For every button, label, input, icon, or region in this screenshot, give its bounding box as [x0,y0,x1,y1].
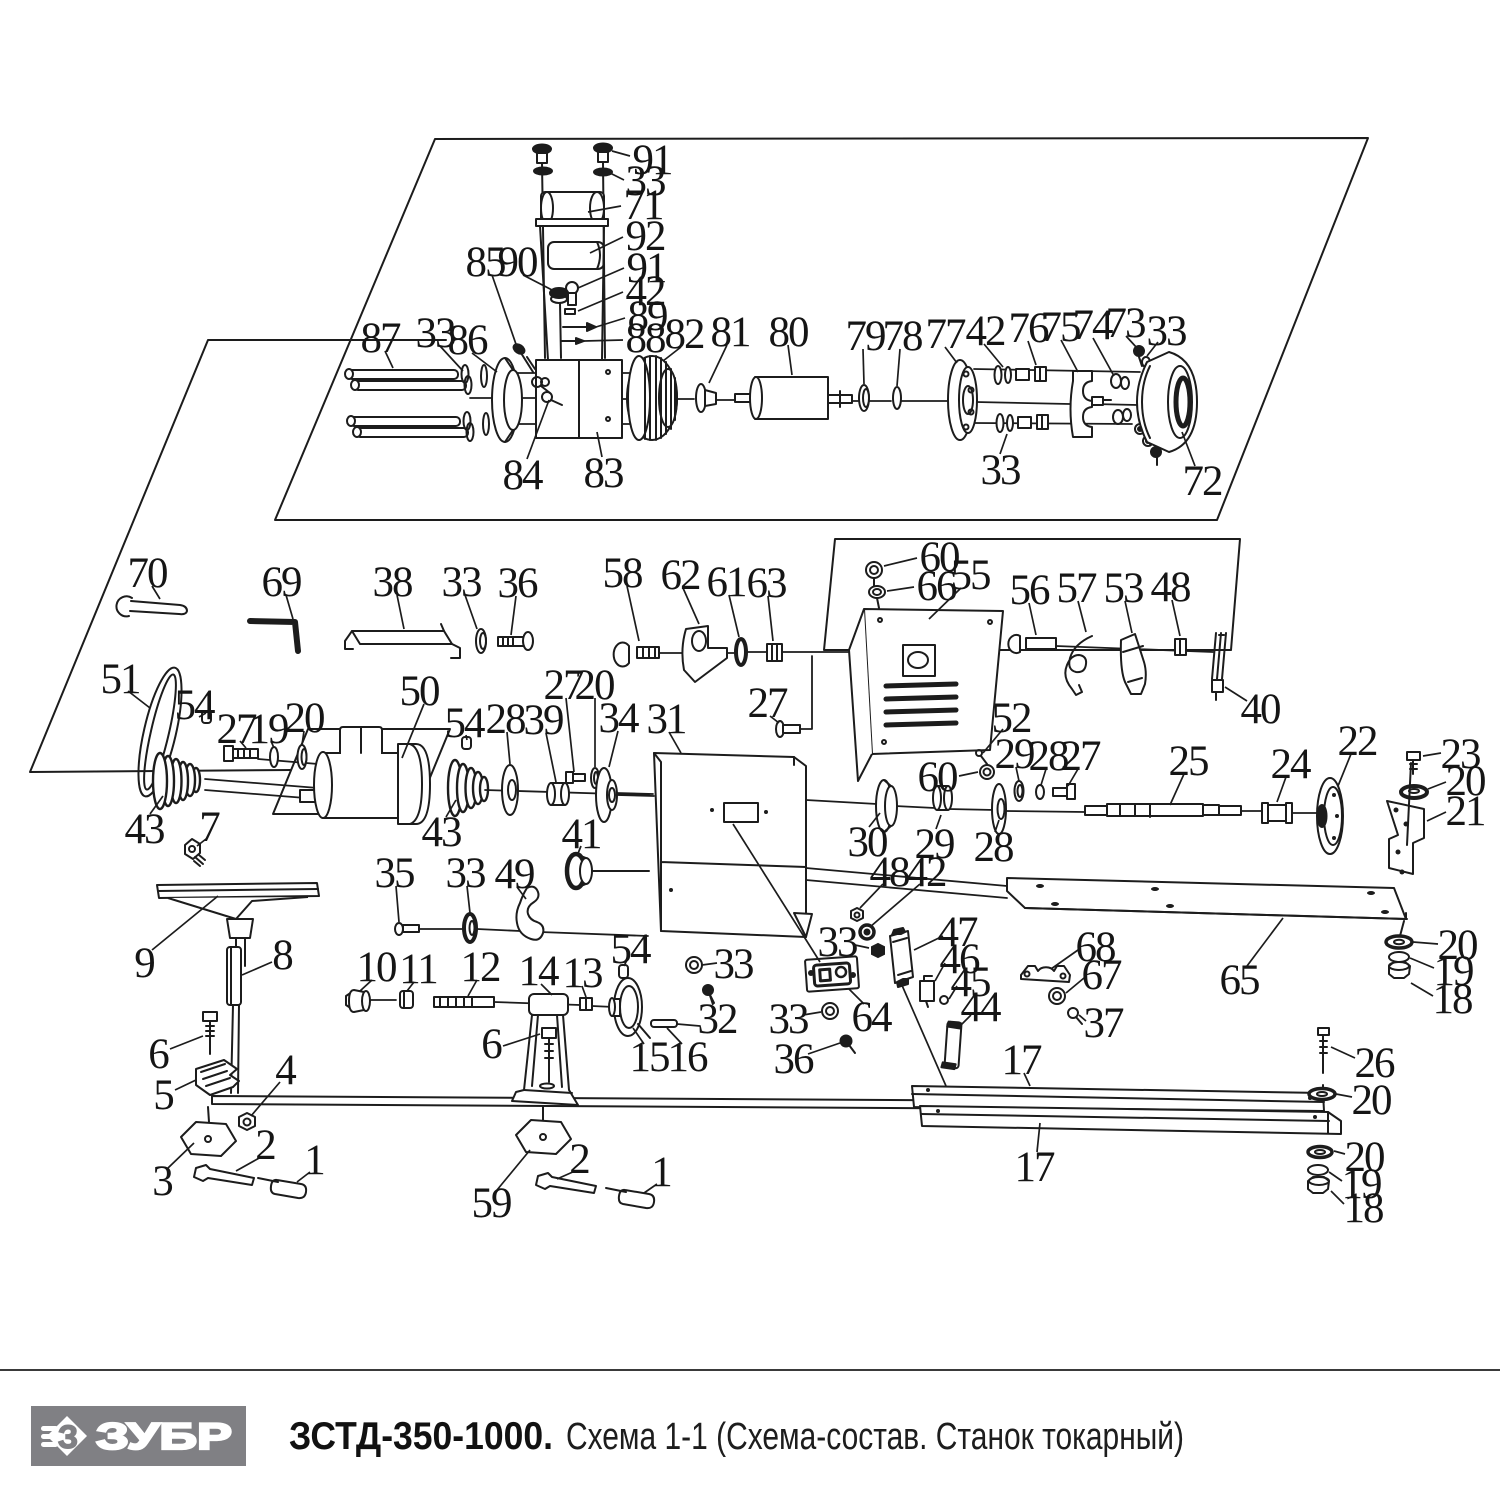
svg-text:60: 60 [918,754,958,801]
svg-text:22: 22 [1338,718,1378,765]
svg-text:14: 14 [519,948,560,995]
svg-text:27: 27 [748,680,789,727]
svg-text:18: 18 [1433,976,1473,1023]
svg-text:82: 82 [665,311,705,358]
svg-text:62: 62 [661,552,701,599]
svg-text:33: 33 [442,559,482,606]
svg-text:54: 54 [175,682,216,729]
svg-text:36: 36 [498,560,539,607]
svg-text:42: 42 [966,308,1006,355]
svg-text:З: З [58,1419,78,1455]
svg-text:33: 33 [1147,308,1187,355]
svg-text:31: 31 [647,696,686,743]
svg-text:37: 37 [1084,1000,1125,1047]
svg-text:40: 40 [1241,686,1281,733]
svg-text:54: 54 [445,700,486,747]
svg-text:27: 27 [1061,733,1102,780]
svg-text:34: 34 [599,695,640,742]
svg-text:ЗУБР: ЗУБР [96,1416,232,1457]
svg-text:3: 3 [152,1158,172,1205]
svg-text:63: 63 [747,560,787,607]
svg-text:48: 48 [1151,564,1191,611]
svg-text:28: 28 [974,824,1014,871]
svg-text:15: 15 [630,1034,670,1081]
svg-text:49: 49 [495,851,535,898]
svg-text:13: 13 [563,950,603,997]
svg-text:6: 6 [481,1021,502,1068]
svg-text:79: 79 [846,313,886,360]
svg-text:50: 50 [400,668,440,715]
svg-text:17: 17 [1002,1037,1043,1084]
svg-text:33: 33 [446,850,486,897]
svg-text:7: 7 [199,804,220,851]
svg-text:53: 53 [1104,565,1144,612]
svg-text:36: 36 [774,1036,815,1083]
svg-text:72: 72 [1183,458,1223,505]
svg-text:78: 78 [883,313,923,360]
svg-text:33: 33 [981,447,1021,494]
svg-text:69: 69 [262,559,302,606]
svg-text:73: 73 [1106,300,1146,347]
svg-text:32: 32 [698,996,738,1043]
svg-text:5: 5 [153,1072,173,1119]
svg-text:2: 2 [569,1136,589,1183]
svg-text:56: 56 [1010,567,1051,614]
svg-text:55: 55 [951,552,991,599]
svg-text:19: 19 [249,706,289,753]
svg-text:20: 20 [285,695,325,742]
svg-text:43: 43 [422,809,462,856]
svg-text:51: 51 [101,656,140,703]
svg-text:70: 70 [128,550,168,597]
svg-text:9: 9 [134,940,154,987]
svg-text:87: 87 [361,315,402,362]
svg-text:84: 84 [503,452,544,499]
svg-text:12: 12 [461,944,501,991]
svg-text:33: 33 [818,919,858,966]
svg-text:38: 38 [373,559,413,606]
svg-text:65: 65 [1220,957,1260,1004]
svg-text:41: 41 [562,811,601,858]
svg-text:54: 54 [611,926,652,973]
svg-text:17: 17 [1015,1144,1056,1191]
svg-text:21: 21 [1446,788,1485,835]
svg-text:6: 6 [148,1031,169,1078]
svg-text:77: 77 [926,311,967,358]
svg-text:48: 48 [870,849,910,896]
svg-text:64: 64 [852,994,893,1041]
svg-text:58: 58 [603,550,643,597]
svg-text:24: 24 [1271,741,1312,788]
svg-text:33: 33 [714,941,754,988]
svg-text:18: 18 [1344,1185,1384,1232]
svg-text:Схема 1-1 (Схема-состав. Стано: Схема 1-1 (Схема-состав. Станок токарный… [566,1416,1184,1458]
svg-text:10: 10 [357,944,397,991]
svg-text:86: 86 [448,317,489,364]
svg-text:8: 8 [272,932,292,979]
svg-text:44: 44 [961,984,1002,1031]
svg-text:1: 1 [651,1149,671,1196]
svg-text:35: 35 [375,850,415,897]
svg-text:20: 20 [1352,1077,1392,1124]
svg-text:25: 25 [1169,738,1209,785]
svg-text:4: 4 [275,1047,296,1094]
svg-text:80: 80 [769,309,809,356]
svg-text:11: 11 [399,946,436,993]
svg-text:57: 57 [1057,565,1098,612]
svg-text:83: 83 [584,450,624,497]
svg-text:88: 88 [626,315,666,362]
svg-text:59: 59 [472,1180,512,1227]
svg-text:61: 61 [707,559,746,606]
svg-text:90: 90 [498,239,538,286]
svg-text:2: 2 [255,1122,275,1169]
svg-text:ЗСТД-350-1000.: ЗСТД-350-1000. [289,1415,553,1458]
svg-text:43: 43 [125,806,165,853]
svg-text:28: 28 [486,696,526,743]
svg-text:81: 81 [711,309,750,356]
svg-text:1: 1 [304,1137,324,1184]
svg-text:67: 67 [1082,952,1123,999]
svg-text:42: 42 [907,849,947,896]
